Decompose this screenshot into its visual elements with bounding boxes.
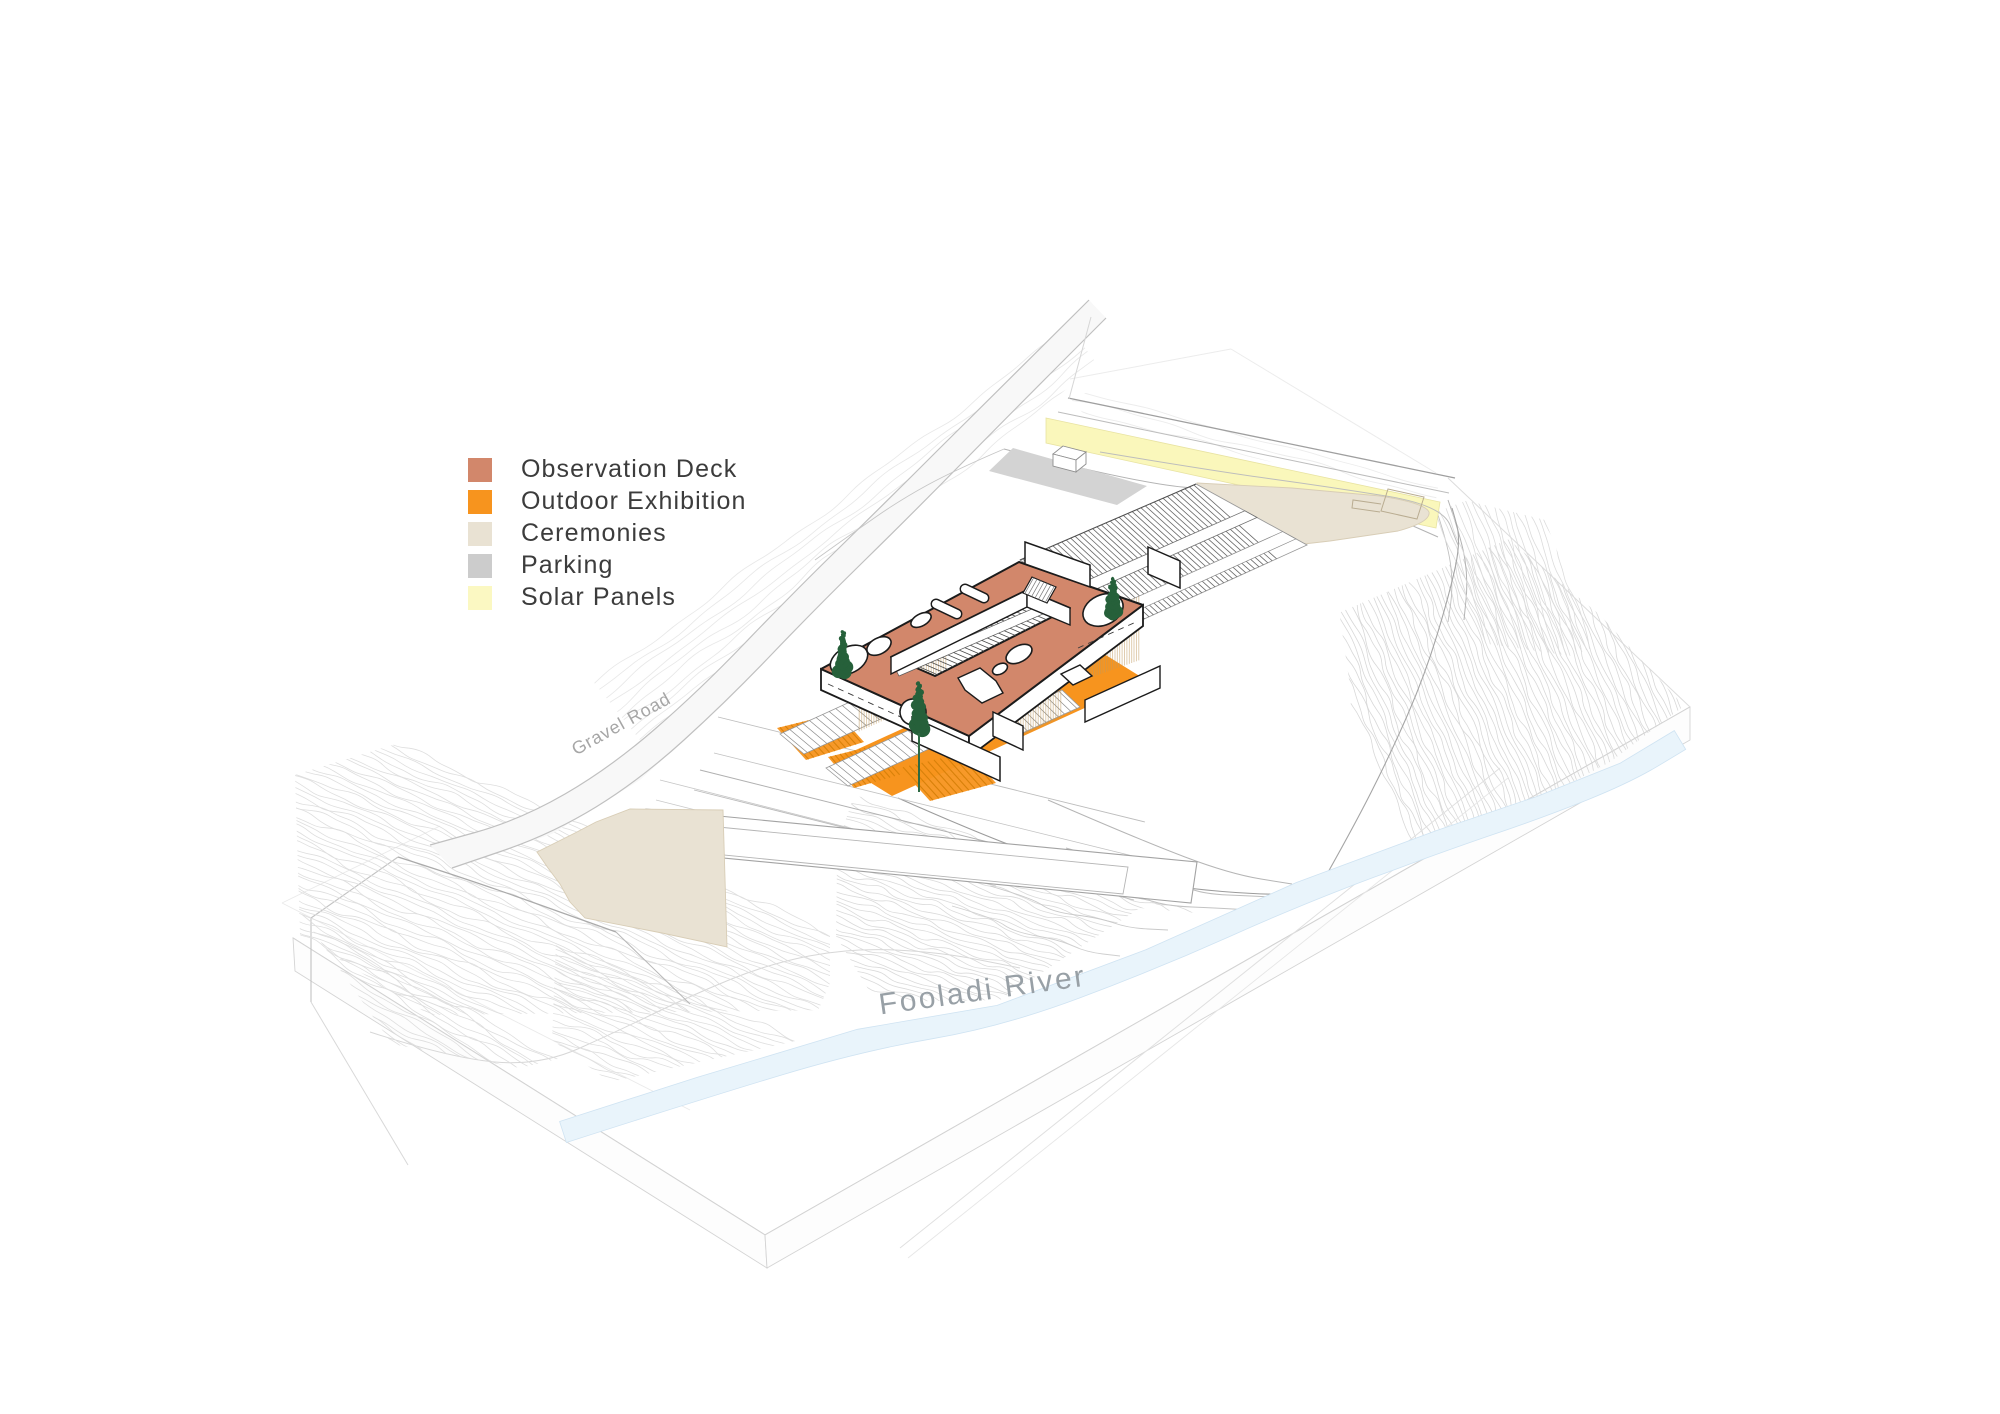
- svg-text:Ceremonies: Ceremonies: [521, 519, 667, 547]
- svg-text:Solar Panels: Solar Panels: [521, 583, 676, 611]
- svg-text:Observation Deck: Observation Deck: [521, 455, 737, 483]
- svg-text:Outdoor Exhibition: Outdoor Exhibition: [521, 487, 746, 515]
- svg-text:Parking: Parking: [521, 551, 613, 579]
